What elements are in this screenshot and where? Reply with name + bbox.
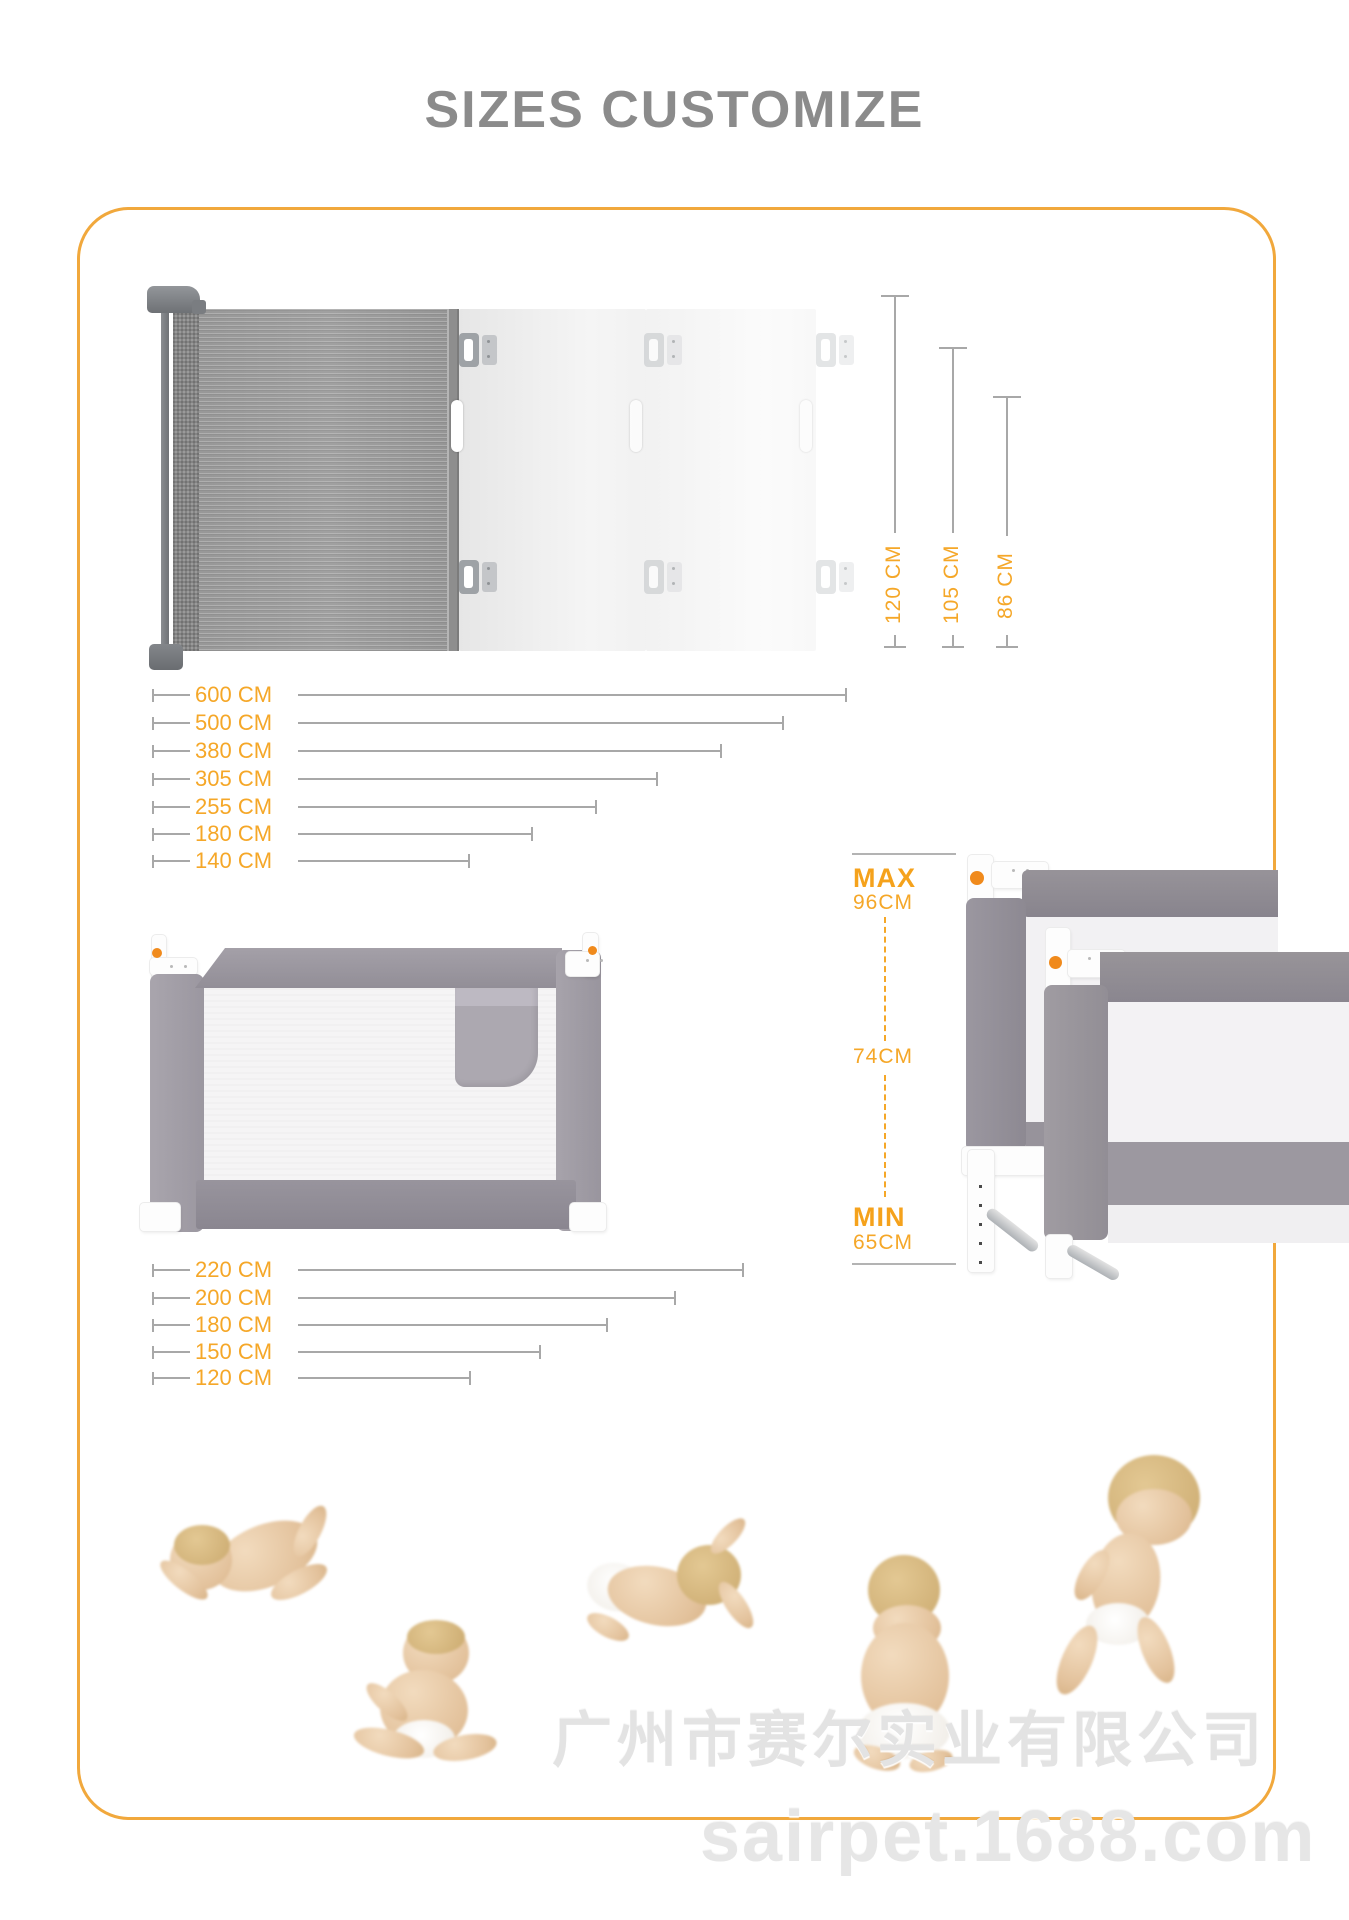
gate-width-label-180: 180 CM — [195, 821, 295, 847]
dashed-line-upper — [884, 917, 886, 1041]
gate-width-label-255: 255 CM — [195, 794, 295, 820]
gate-width-label-500: 500 CM — [195, 710, 295, 736]
max-label: MAX — [853, 863, 916, 894]
bedrail-width-label-220: 220 CM — [195, 1257, 295, 1283]
baby-walking-right — [1050, 1455, 1220, 1705]
gate-latch-bottom — [459, 560, 497, 594]
gate-height-label-86: 86 CM — [994, 539, 1020, 633]
gate-mesh-edge-weave — [173, 309, 199, 651]
gate-ghost-3-handle-slot — [800, 400, 812, 452]
gate-width-label-380: 380 CM — [195, 738, 295, 764]
gate-width-row-140: 140 CM — [152, 847, 912, 875]
bedrail-width-row-120: 120 CM — [152, 1364, 912, 1392]
watermark-company: 广州市赛尔实业有限公司 — [552, 1692, 1267, 1779]
bedrail-width-label-120: 120 CM — [195, 1365, 295, 1391]
bedrail-right-bracket — [566, 952, 599, 976]
bedrail-width-row-200: 200 CM — [152, 1284, 912, 1312]
gate-height-label-120: 120 CM — [882, 536, 908, 633]
bedrail-right-orange-dot — [588, 946, 597, 955]
photo-front-leg — [1046, 1235, 1072, 1278]
photo-front-orange-dot — [1049, 956, 1062, 969]
baby-crawling-center — [585, 1525, 760, 1670]
bedrail-width-row-150: 150 CM — [152, 1338, 912, 1366]
bedrail-foot-right — [570, 1203, 606, 1231]
min-value: 65CM — [853, 1231, 913, 1255]
gate-width-label-140: 140 CM — [195, 848, 295, 874]
infographic-canvas: SIZES CUSTOMIZE 120 CM 105 CM — [0, 0, 1349, 1920]
gate-height-dim-86: 86 CM — [993, 396, 1021, 648]
photo-back-left-strip — [966, 898, 1026, 1152]
photo-front-left-strip — [1044, 985, 1108, 1240]
photo-front-mid-band — [1108, 1142, 1349, 1205]
gate-pole — [161, 308, 169, 654]
photo-front-mesh — [1108, 1002, 1349, 1142]
gate-mesh — [173, 309, 459, 651]
bedrail-left-bracket — [150, 958, 197, 975]
gate-width-row-500: 500 CM — [152, 709, 912, 737]
bedrail-pocket — [455, 988, 538, 1087]
photo-back-top-bar — [1022, 870, 1278, 917]
mid-value: 74CM — [853, 1045, 913, 1069]
gate-latch-top — [459, 333, 497, 367]
min-label: MIN — [853, 1202, 906, 1233]
bedrail-width-label-200: 200 CM — [195, 1285, 295, 1311]
bedrail-width-row-220: 220 CM — [152, 1256, 912, 1284]
baby-crawling-left — [150, 1495, 350, 1660]
gate-width-label-600: 600 CM — [195, 682, 295, 708]
gate-ghost-2-handle-slot — [630, 400, 642, 452]
dashed-line-lower — [884, 1075, 886, 1197]
gate-width-row-600: 600 CM — [152, 681, 912, 709]
gate-width-row-380: 380 CM — [152, 737, 912, 765]
gate-width-row-180: 180 CM — [152, 820, 912, 848]
watermark-site: sairpet.1688.com — [700, 1796, 1316, 1878]
gate-height-dim-105: 105 CM — [939, 347, 967, 648]
photo-front-top-bar — [1100, 952, 1349, 1002]
bedrail-width-label-180: 180 CM — [195, 1312, 295, 1338]
photo-back-leg-holes — [979, 1185, 982, 1270]
bedrail-width-label-150: 150 CM — [195, 1339, 295, 1365]
max-value: 96CM — [853, 891, 913, 915]
gate-width-row-305: 305 CM — [152, 765, 912, 793]
gate-width-row-255: 255 CM — [152, 793, 912, 821]
bedrail-height-range: MAX 96CM 74CM MIN 65CM — [830, 845, 970, 1275]
gate-width-label-305: 305 CM — [195, 766, 295, 792]
gate-handle-slot — [451, 400, 463, 452]
gate-pole-cap-nub — [192, 300, 206, 314]
gate-pole-foot — [149, 644, 183, 670]
bedrail-foot-left — [140, 1203, 180, 1231]
photo-front-lower-panel — [1108, 1205, 1349, 1243]
gate-height-label-105: 105 CM — [940, 536, 966, 633]
gate-mesh-right-bar — [447, 309, 459, 651]
bedrail-width-row-180: 180 CM — [152, 1311, 912, 1339]
gate-height-dim-120: 120 CM — [881, 295, 909, 648]
max-line — [852, 853, 956, 855]
baby-sitting-front — [345, 1620, 510, 1780]
photo-back-orange-dot — [970, 871, 984, 885]
bedrail-bottom-bar — [196, 1180, 576, 1229]
page-title: SIZES CUSTOMIZE — [0, 80, 1349, 140]
bedrail-left-orange-dot — [152, 948, 162, 958]
bedrail-top-bar — [195, 948, 562, 988]
